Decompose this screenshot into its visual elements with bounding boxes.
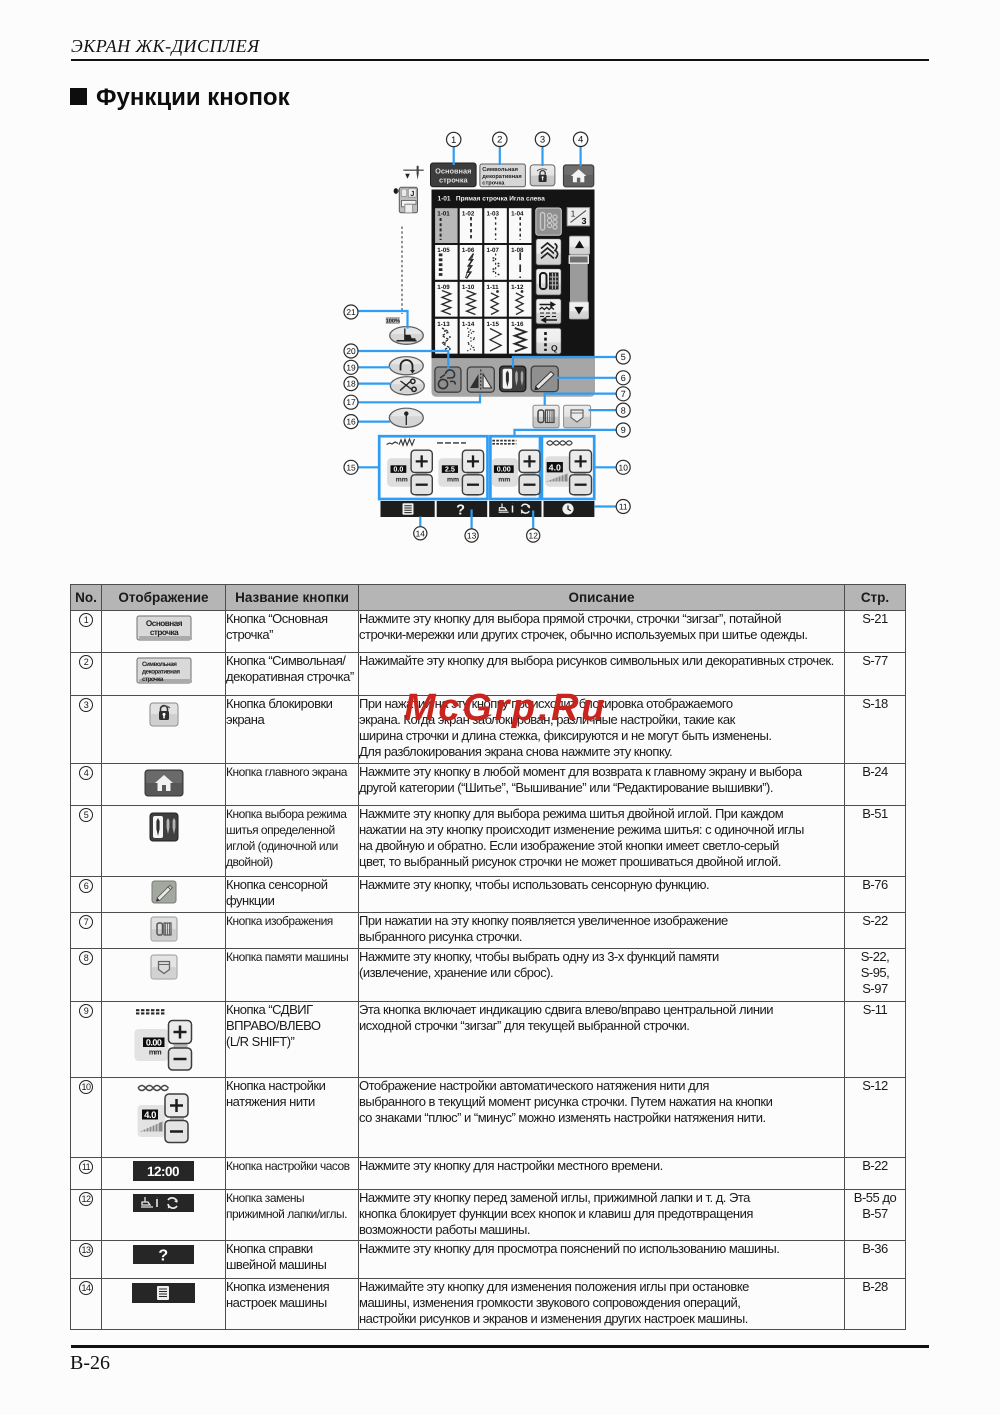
- svg-text:3: 3: [581, 216, 586, 226]
- svg-text:10: 10: [619, 462, 629, 472]
- svg-text:1-12: 1-12: [511, 284, 524, 291]
- svg-text:строчка: строчка: [482, 180, 505, 186]
- svg-text:19: 19: [346, 362, 356, 372]
- svg-text:1-13: 1-13: [437, 321, 450, 328]
- svg-text:100%: 100%: [386, 319, 400, 325]
- svg-text:Символьная: Символьная: [482, 167, 518, 173]
- svg-text:1-04: 1-04: [511, 210, 524, 217]
- svg-text:1-01 Прямая строчка Игла сле: 1-01 Прямая строчка Игла слева: [438, 195, 546, 202]
- svg-text:декоративная: декоративная: [482, 174, 521, 180]
- svg-text:mm: mm: [396, 476, 408, 483]
- svg-text:16: 16: [346, 417, 356, 427]
- svg-text:1-02: 1-02: [462, 210, 475, 217]
- svg-text:2.5: 2.5: [445, 465, 455, 474]
- svg-text:21: 21: [346, 307, 356, 317]
- svg-text:1-11: 1-11: [487, 284, 500, 291]
- svg-text:0.00: 0.00: [497, 465, 511, 474]
- svg-text:3: 3: [540, 135, 545, 146]
- svg-text:строчка: строчка: [439, 175, 469, 184]
- svg-text:1-09: 1-09: [437, 284, 450, 291]
- svg-text:Основная: Основная: [145, 619, 182, 628]
- svg-text:1-03: 1-03: [487, 210, 500, 217]
- svg-text:1-07: 1-07: [487, 247, 500, 254]
- svg-text:20: 20: [346, 346, 356, 356]
- svg-text:7: 7: [621, 389, 626, 399]
- svg-text:mm: mm: [148, 1048, 161, 1057]
- svg-text:6: 6: [621, 373, 626, 383]
- svg-text:12:00: 12:00: [146, 1164, 178, 1179]
- svg-text:5: 5: [621, 352, 626, 362]
- svg-text:18: 18: [346, 379, 356, 389]
- svg-text:J: J: [410, 189, 414, 198]
- svg-text:8: 8: [621, 405, 626, 415]
- svg-text:1-16: 1-16: [511, 321, 524, 328]
- svg-text:1-01: 1-01: [437, 210, 450, 217]
- svg-text:1: 1: [571, 209, 576, 219]
- svg-text:14: 14: [416, 528, 426, 538]
- svg-text:4.0: 4.0: [144, 1110, 156, 1121]
- svg-text:mm: mm: [498, 476, 510, 483]
- svg-text:mm: mm: [447, 476, 459, 483]
- svg-text:9: 9: [621, 425, 626, 435]
- svg-text:4: 4: [578, 135, 583, 146]
- svg-text:11: 11: [619, 502, 628, 512]
- svg-text:Q: Q: [551, 343, 558, 353]
- svg-text:2: 2: [497, 135, 502, 146]
- svg-text:декоративная: декоративная: [142, 669, 180, 676]
- svg-text:Символьная: Символьная: [142, 661, 177, 668]
- svg-text:4.0: 4.0: [549, 462, 561, 472]
- svg-text:13: 13: [467, 531, 477, 541]
- svg-text:?: ?: [456, 503, 465, 519]
- svg-text:1-15: 1-15: [487, 321, 500, 328]
- svg-text:0.00: 0.00: [145, 1038, 161, 1048]
- svg-text:строчка: строчка: [149, 628, 178, 637]
- svg-text:1-14: 1-14: [462, 321, 475, 328]
- svg-text:1-05: 1-05: [437, 247, 450, 254]
- svg-text:1: 1: [451, 135, 456, 146]
- svg-text:строчка: строчка: [142, 676, 164, 683]
- svg-text:1-08: 1-08: [511, 247, 524, 254]
- svg-text:0.0: 0.0: [393, 465, 403, 474]
- svg-text:12: 12: [529, 531, 539, 541]
- svg-text:?: ?: [158, 1248, 167, 1265]
- svg-text:1-10: 1-10: [462, 284, 475, 291]
- svg-text:17: 17: [346, 397, 356, 407]
- svg-text:Основная: Основная: [435, 166, 471, 175]
- svg-text:15: 15: [346, 462, 356, 472]
